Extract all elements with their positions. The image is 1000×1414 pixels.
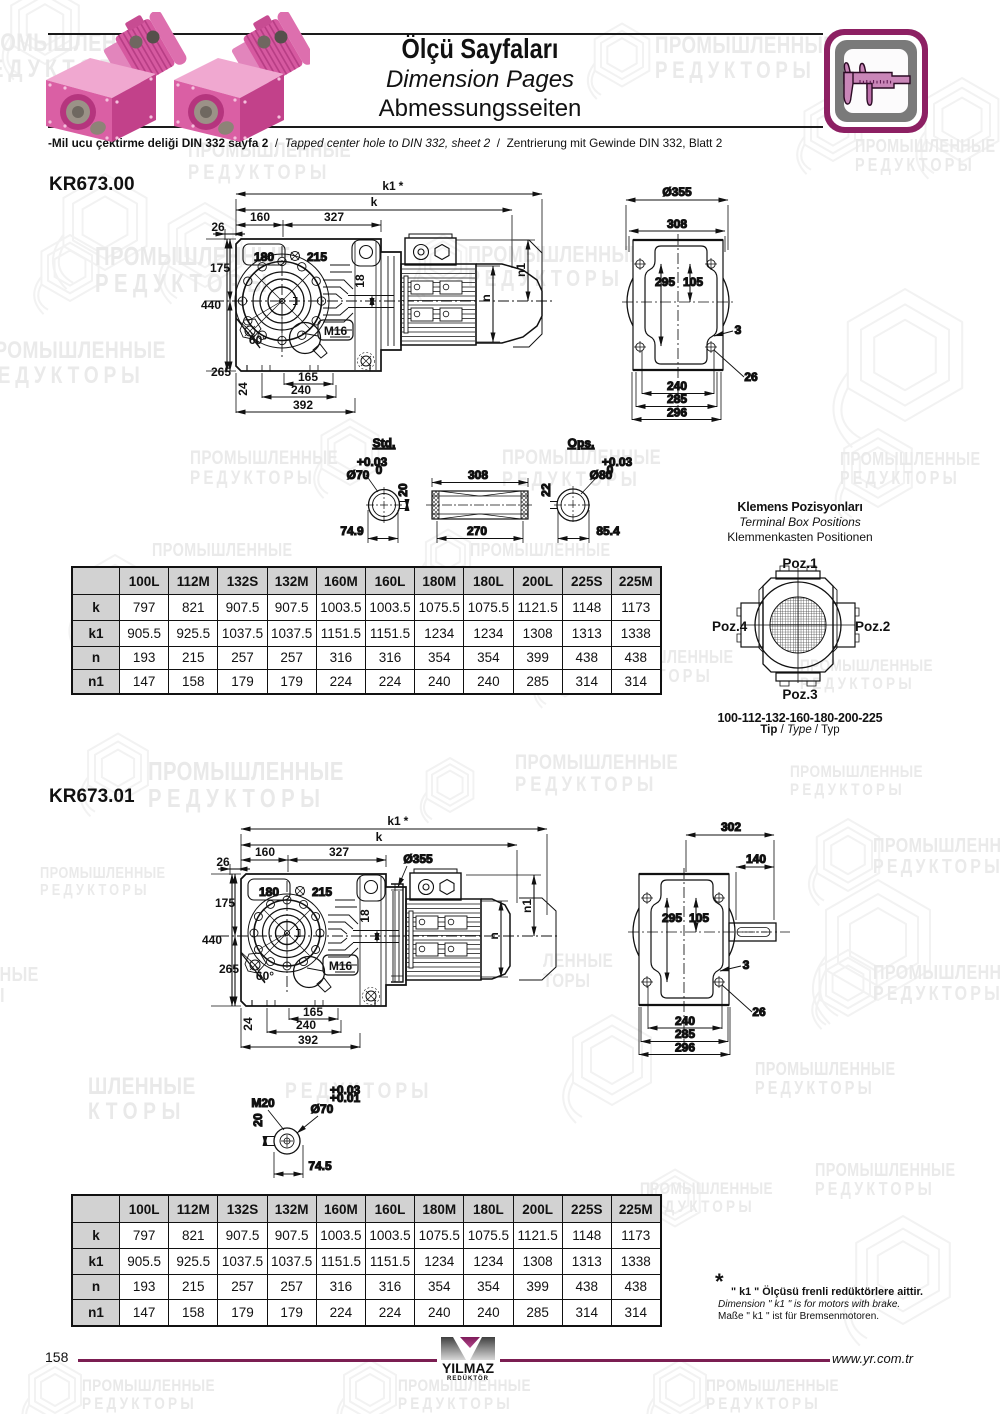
svg-text:105: 105 — [689, 911, 709, 925]
svg-text:+0.03: +0.03 — [357, 455, 388, 469]
svg-text:308: 308 — [468, 468, 488, 482]
svg-text:105: 105 — [683, 275, 703, 289]
svg-text:295: 295 — [655, 275, 675, 289]
svg-text:Ø70: Ø70 — [311, 1102, 334, 1116]
svg-text:285: 285 — [667, 392, 687, 406]
svg-text:160: 160 — [250, 210, 270, 224]
svg-text:M16: M16 — [324, 324, 348, 338]
svg-text:n: n — [479, 294, 493, 301]
svg-text:20: 20 — [396, 483, 410, 497]
svg-text:240: 240 — [675, 1014, 695, 1028]
svg-text:85.4: 85.4 — [596, 524, 620, 538]
svg-text:24: 24 — [236, 382, 250, 396]
svg-text:26: 26 — [744, 370, 758, 384]
svg-text:327: 327 — [324, 210, 344, 224]
svg-text:*: * — [399, 179, 404, 193]
svg-text:Ø355: Ø355 — [662, 185, 692, 199]
svg-text:k1: k1 — [382, 179, 396, 193]
svg-text:Ops.: Ops. — [568, 436, 595, 450]
svg-text:n1: n1 — [514, 263, 528, 277]
svg-text:Ø80: Ø80 — [590, 468, 613, 482]
svg-text:296: 296 — [667, 406, 687, 420]
svg-text:k: k — [371, 195, 378, 209]
svg-text:n: n — [487, 932, 501, 939]
svg-text:+0.01: +0.01 — [330, 1091, 361, 1105]
svg-text:240: 240 — [291, 383, 311, 397]
svg-text:302: 302 — [721, 820, 741, 834]
svg-text:0: 0 — [376, 463, 383, 477]
svg-text:Ø355: Ø355 — [403, 852, 433, 866]
svg-text:440: 440 — [201, 298, 221, 312]
svg-text:295: 295 — [662, 911, 682, 925]
svg-text:265: 265 — [219, 962, 239, 976]
svg-text:74.5: 74.5 — [308, 1159, 332, 1173]
svg-text:3: 3 — [735, 323, 742, 337]
svg-text:140: 140 — [746, 852, 766, 866]
svg-text:REDÜKTÖR: REDÜKTÖR — [447, 1375, 489, 1382]
svg-text:165: 165 — [298, 370, 318, 384]
svg-text:22: 22 — [539, 483, 553, 497]
svg-text:74.9: 74.9 — [340, 524, 364, 538]
svg-text:440: 440 — [202, 933, 222, 947]
svg-text:YILMAZ: YILMAZ — [442, 1360, 495, 1376]
svg-text:392: 392 — [293, 398, 313, 412]
svg-text:3: 3 — [743, 958, 750, 972]
svg-text:Std.: Std. — [373, 436, 396, 450]
svg-text:265: 265 — [211, 365, 231, 379]
svg-text:18: 18 — [353, 274, 367, 288]
svg-text:20: 20 — [251, 1113, 265, 1127]
svg-text:60°: 60° — [249, 333, 267, 347]
svg-text:n1: n1 — [520, 899, 534, 913]
svg-text:26: 26 — [211, 220, 225, 234]
svg-text:M20: M20 — [251, 1096, 275, 1110]
svg-text:285: 285 — [675, 1027, 695, 1041]
svg-text:308: 308 — [667, 217, 687, 231]
svg-text:240: 240 — [667, 379, 687, 393]
svg-text:26: 26 — [752, 1005, 766, 1019]
svg-text:296: 296 — [675, 1041, 695, 1055]
svg-text:270: 270 — [467, 524, 487, 538]
svg-text:215: 215 — [307, 250, 327, 264]
